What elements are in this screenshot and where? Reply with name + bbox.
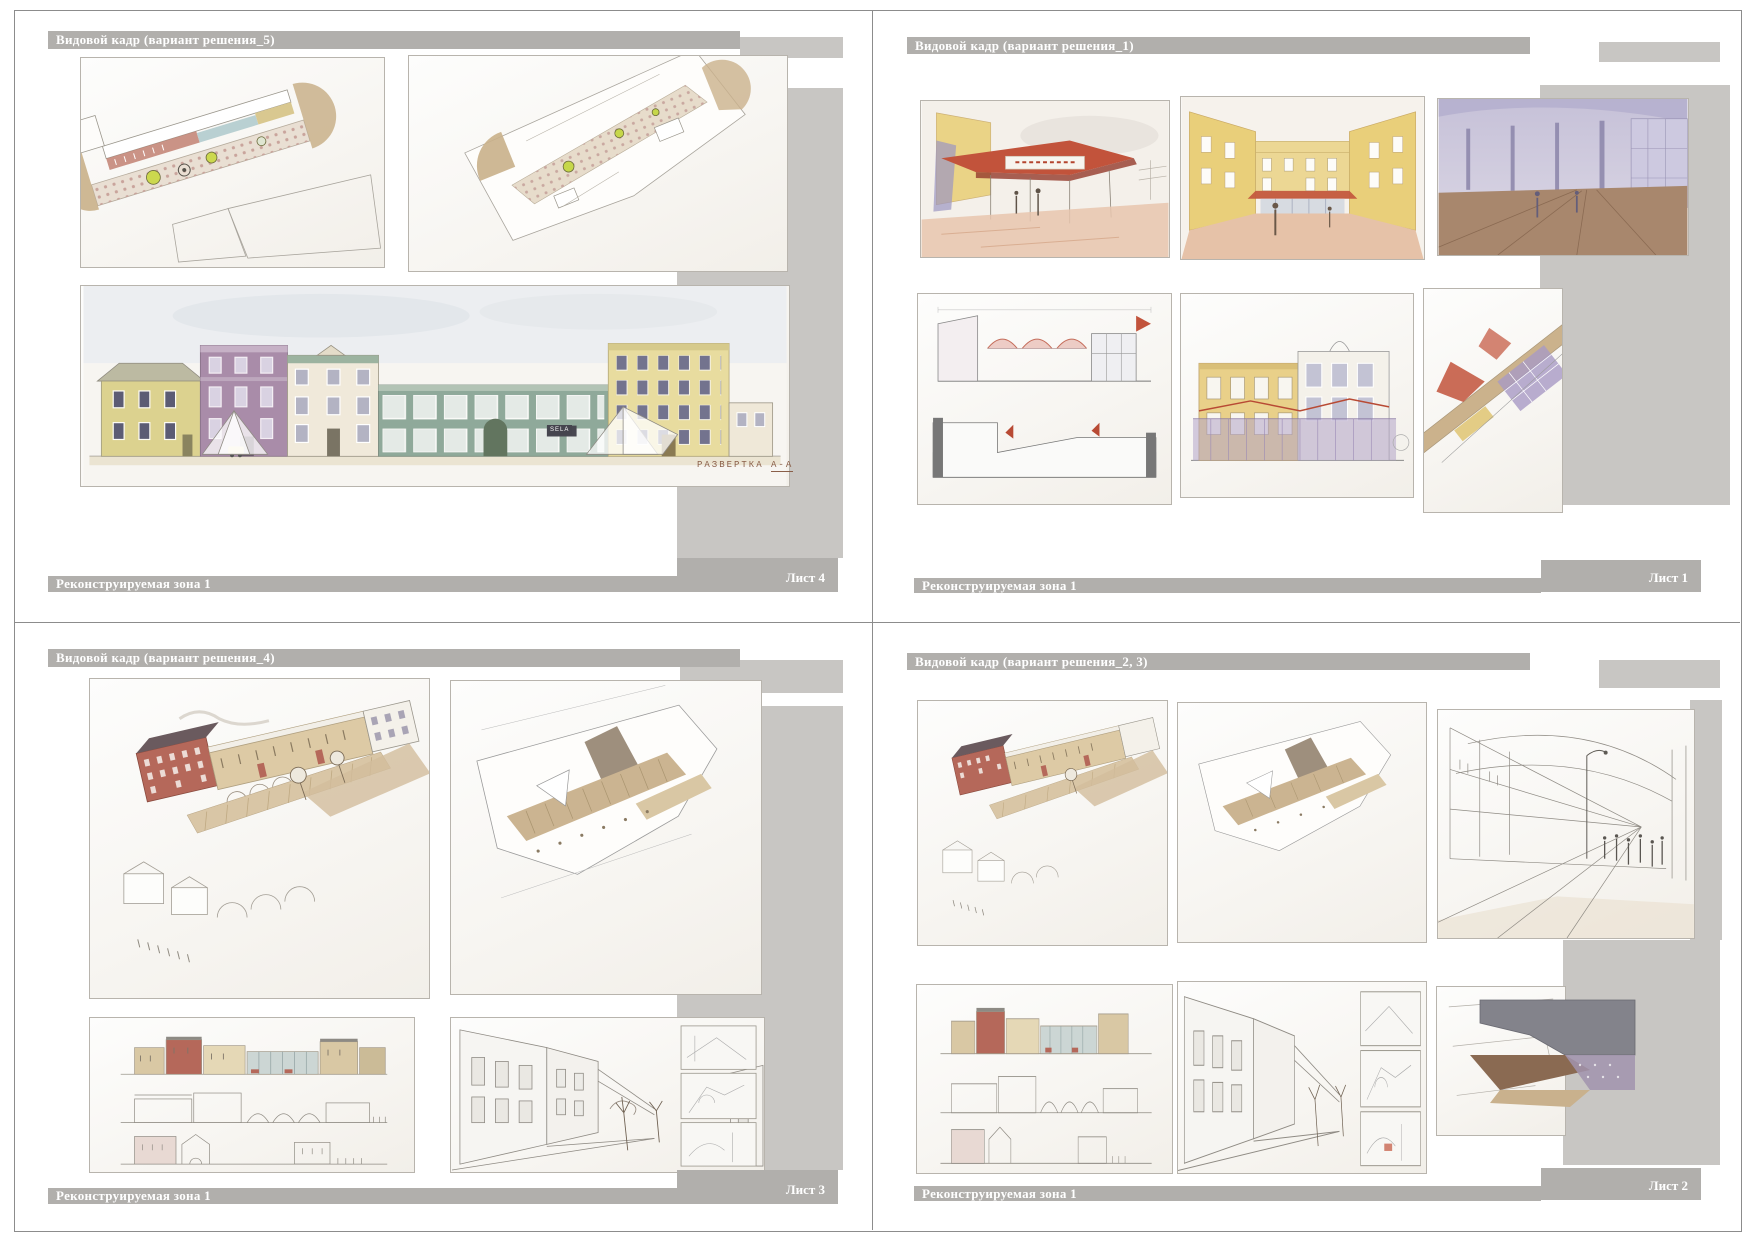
sheet-title: Видовой кадр (вариант решения_2, 3) <box>915 654 1148 670</box>
sheet-footer-bar: Реконструируемая зона 1 <box>48 1188 677 1204</box>
zone-label: Реконструируемая зона 1 <box>56 1188 211 1204</box>
sheet-footer-bar: Реконструируемая зона 1 <box>914 1186 1541 1201</box>
street-perspective-drawing <box>1177 981 1427 1174</box>
street-perspective-sketch <box>1178 982 1426 1173</box>
axonometric-fragment-drawing <box>1423 288 1563 513</box>
elevation-canopy-sketch <box>1181 294 1413 497</box>
caption-label: РАЗВЕРТКА <box>697 460 764 470</box>
axonometric-view-sketch <box>90 679 429 998</box>
dark-plan-fragment-sketch <box>1470 995 1640 1110</box>
elevation-canopy-drawing <box>1180 293 1414 498</box>
section-sketch <box>918 294 1171 504</box>
perspective-watercolor-courtyard <box>1180 96 1425 260</box>
sheet-title-bar: Видовой кадр (вариант решения_2, 3) <box>907 653 1530 670</box>
section-drawings <box>917 293 1172 505</box>
sheet-footer-bar: Реконструируемая зона 1 <box>48 576 677 592</box>
zone-label: Реконструируемая зона 1 <box>922 578 1077 594</box>
site-plan-abstract-drawing <box>450 680 762 995</box>
sheet-number-block: Лист 4 <box>677 558 838 592</box>
sheet-number: Лист 3 <box>786 1182 825 1198</box>
axonometric-view-sketch <box>918 701 1167 945</box>
elevations-rows-drawing <box>89 1017 415 1173</box>
site-plan-abstract-sketch <box>1178 703 1426 942</box>
elevations-rows-sketch <box>917 985 1172 1173</box>
street-perspective-sketch <box>451 1018 764 1172</box>
courtyard-watercolor-sketch <box>1181 97 1424 259</box>
decor-strip <box>1599 660 1720 688</box>
dark-plan-fragment <box>1470 995 1640 1110</box>
street-perspective-drawing <box>450 1017 765 1173</box>
site-plan-abstract-drawing <box>1177 702 1427 943</box>
street-perspective-line-sketch-drawing <box>1437 709 1695 939</box>
decor-strip <box>1599 42 1720 62</box>
vertical-divider <box>872 10 873 1230</box>
presentation-collage: Видовой кадр (вариант решения_5) <box>0 0 1755 1241</box>
sheet-title: Видовой кадр (вариант решения_5) <box>56 32 275 48</box>
perspective-watercolor-interior <box>1437 98 1689 256</box>
masterplan-axonometric-sketch <box>81 58 384 267</box>
sheet-footer-bar: Реконструируемая зона 1 <box>914 578 1541 593</box>
sheet-number: Лист 2 <box>1649 1178 1688 1194</box>
elevation-caption: РАЗВЕРТКА А-А <box>697 460 793 470</box>
street-perspective-line-sketch <box>1438 710 1694 938</box>
axonometric-view-drawing <box>917 700 1168 946</box>
axonometric-view-drawing <box>89 678 430 999</box>
sheet-number: Лист 1 <box>1649 570 1688 586</box>
awning-watercolor-sketch <box>921 101 1169 257</box>
caption-section-ref: А-А <box>771 460 793 472</box>
zone-label: Реконструируемая зона 1 <box>56 576 211 592</box>
elevations-rows-sketch <box>90 1018 414 1172</box>
horizontal-divider <box>14 622 1740 623</box>
zone-label: Реконструируемая зона 1 <box>922 1186 1077 1202</box>
sheet-number-block: Лист 1 <box>1541 560 1701 592</box>
sheet-title: Видовой кадр (вариант решения_1) <box>915 38 1134 54</box>
sheet-number-block: Лист 2 <box>1541 1168 1701 1200</box>
sheet-title-bar: Видовой кадр (вариант решения_4) <box>48 649 740 667</box>
site-plan-sketch <box>409 56 787 271</box>
axonometric-fragment-sketch <box>1424 289 1562 512</box>
interior-watercolor-sketch <box>1438 99 1688 255</box>
street-elevation-sketch <box>81 286 789 486</box>
perspective-watercolor-awning <box>920 100 1170 258</box>
masterplan-axonometric-drawing <box>80 57 385 268</box>
site-plan-drawing <box>408 55 788 272</box>
storefront-sign: SELA <box>547 425 572 435</box>
sheet-title-bar: Видовой кадр (вариант решения_1) <box>907 37 1530 54</box>
sheet-number-block: Лист 3 <box>677 1170 838 1204</box>
sheet-title: Видовой кадр (вариант решения_4) <box>56 650 275 666</box>
street-elevation-drawing: SELA РАЗВЕРТКА А-А <box>80 285 790 487</box>
site-plan-abstract-sketch <box>451 681 761 994</box>
sheet-number: Лист 4 <box>786 570 825 586</box>
elevations-rows-drawing <box>916 984 1173 1174</box>
sheet-title-bar: Видовой кадр (вариант решения_5) <box>48 31 740 49</box>
